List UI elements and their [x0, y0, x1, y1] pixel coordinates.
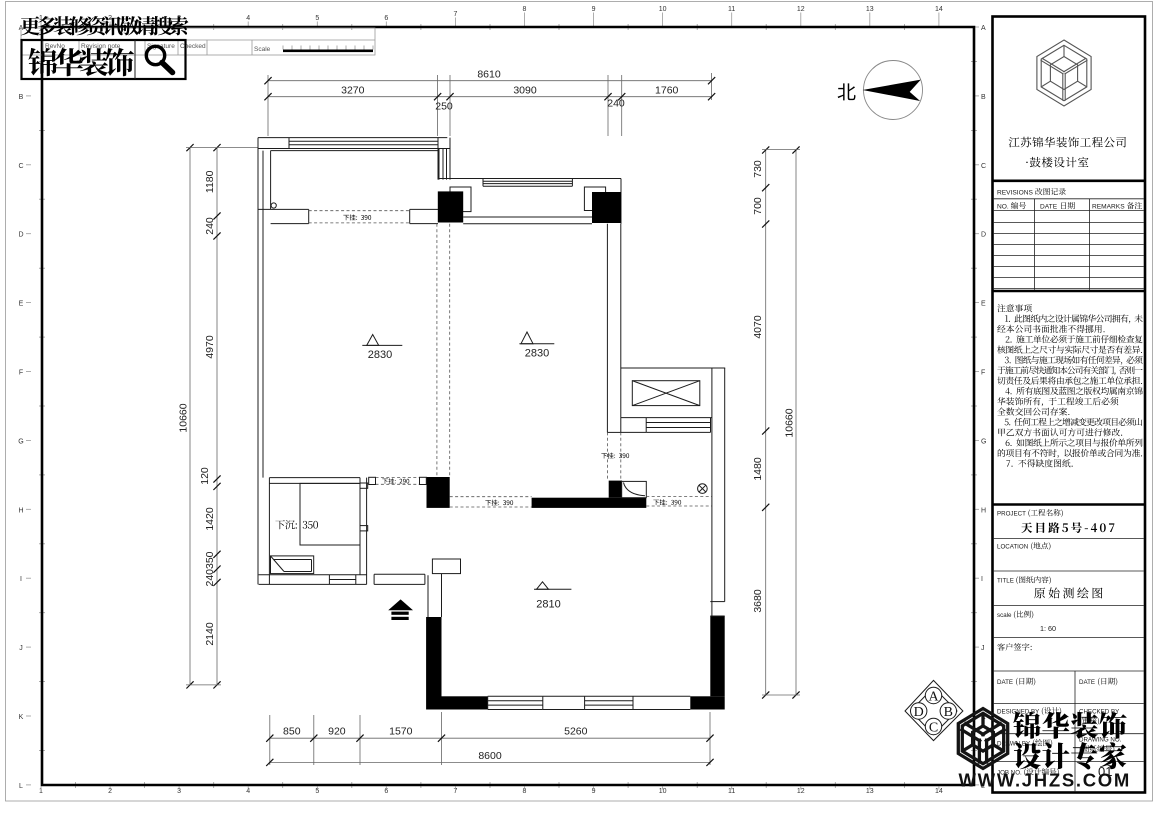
svg-text:DATE: DATE — [1040, 204, 1058, 211]
svg-text:D: D — [18, 232, 23, 239]
svg-text:240350: 240350 — [204, 551, 216, 586]
svg-text:2830: 2830 — [525, 348, 549, 360]
svg-text:1180: 1180 — [204, 170, 216, 193]
svg-text:C: C — [929, 721, 938, 736]
svg-text:B: B — [981, 94, 986, 101]
svg-text:730: 730 — [752, 160, 764, 178]
svg-text:J: J — [19, 645, 23, 652]
svg-text:K: K — [19, 714, 24, 721]
svg-text:1760: 1760 — [655, 85, 679, 97]
svg-text:REVISIONS: REVISIONS — [997, 190, 1034, 197]
svg-text:7: 7 — [453, 11, 457, 18]
svg-text:TITLE: TITLE — [997, 578, 1014, 585]
svg-text:4970: 4970 — [204, 335, 216, 359]
svg-text:B: B — [944, 705, 953, 720]
svg-text:8600: 8600 — [478, 750, 502, 762]
svg-text:C: C — [18, 163, 23, 170]
svg-text:I: I — [981, 576, 983, 583]
svg-text:13: 13 — [866, 6, 874, 13]
svg-text:10660: 10660 — [178, 403, 190, 432]
svg-text:6: 6 — [384, 15, 388, 22]
svg-text:E: E — [19, 301, 24, 308]
svg-text:850: 850 — [283, 726, 301, 738]
svg-text:NO.: NO. — [997, 204, 1009, 211]
svg-text:Scale: Scale — [254, 46, 271, 53]
svg-text:2810: 2810 — [536, 599, 560, 611]
svg-text:D: D — [981, 232, 986, 239]
svg-text:12: 12 — [797, 6, 805, 13]
svg-text:240: 240 — [607, 98, 625, 110]
svg-text:8610: 8610 — [477, 69, 501, 81]
svg-text:1: 60: 1: 60 — [1040, 624, 1056, 633]
svg-text:2: 2 — [108, 15, 112, 22]
svg-text:3090: 3090 — [513, 85, 537, 97]
svg-text:120: 120 — [199, 467, 211, 485]
svg-text:scale: scale — [997, 612, 1012, 619]
svg-text:10660: 10660 — [784, 408, 796, 437]
svg-text:DATE: DATE — [1079, 679, 1095, 686]
svg-text:G: G — [18, 438, 23, 445]
svg-text:8: 8 — [523, 6, 527, 13]
svg-text:D: D — [914, 705, 924, 720]
svg-text:G: G — [981, 438, 986, 445]
svg-text:240: 240 — [204, 217, 216, 235]
svg-text:4: 4 — [246, 15, 250, 22]
svg-text:1480: 1480 — [752, 457, 764, 481]
svg-text:J: J — [981, 645, 985, 652]
svg-text:F: F — [981, 370, 985, 377]
svg-text:3680: 3680 — [752, 589, 764, 613]
svg-text:11: 11 — [728, 6, 735, 13]
svg-text:5260: 5260 — [564, 726, 588, 738]
svg-text:1420: 1420 — [204, 507, 216, 531]
svg-text:PROJECT: PROJECT — [997, 511, 1026, 518]
svg-text:A: A — [981, 25, 986, 32]
svg-text:920: 920 — [328, 726, 346, 738]
svg-text:250: 250 — [435, 101, 453, 113]
svg-text:E: E — [981, 301, 986, 308]
svg-text:B: B — [19, 94, 24, 101]
svg-text:F: F — [19, 370, 23, 377]
svg-text:1570: 1570 — [389, 726, 413, 738]
svg-text:5: 5 — [315, 15, 319, 22]
svg-text:14: 14 — [935, 6, 943, 13]
svg-text:DRAWING NO.: DRAWING NO. — [1079, 737, 1122, 744]
svg-text:9: 9 — [592, 6, 596, 13]
svg-text:H: H — [981, 507, 986, 514]
svg-text:H: H — [18, 507, 23, 514]
svg-text:WWW.JHZS.COM: WWW.JHZS.COM — [959, 770, 1132, 791]
svg-text:700: 700 — [752, 197, 764, 215]
svg-text:10: 10 — [659, 6, 667, 13]
svg-text:3270: 3270 — [341, 85, 365, 97]
svg-text:L: L — [19, 783, 23, 790]
svg-text:LOCATION: LOCATION — [997, 544, 1028, 551]
svg-text:4070: 4070 — [752, 315, 764, 339]
svg-text:C: C — [981, 163, 986, 170]
svg-text:2830: 2830 — [368, 349, 392, 361]
svg-text:A: A — [928, 690, 939, 705]
svg-text:I: I — [20, 576, 22, 583]
svg-text:DATE: DATE — [997, 679, 1013, 686]
svg-text:REMARKS: REMARKS — [1092, 204, 1125, 211]
svg-text:Checked: Checked — [180, 43, 206, 50]
svg-text:2140: 2140 — [204, 622, 216, 646]
